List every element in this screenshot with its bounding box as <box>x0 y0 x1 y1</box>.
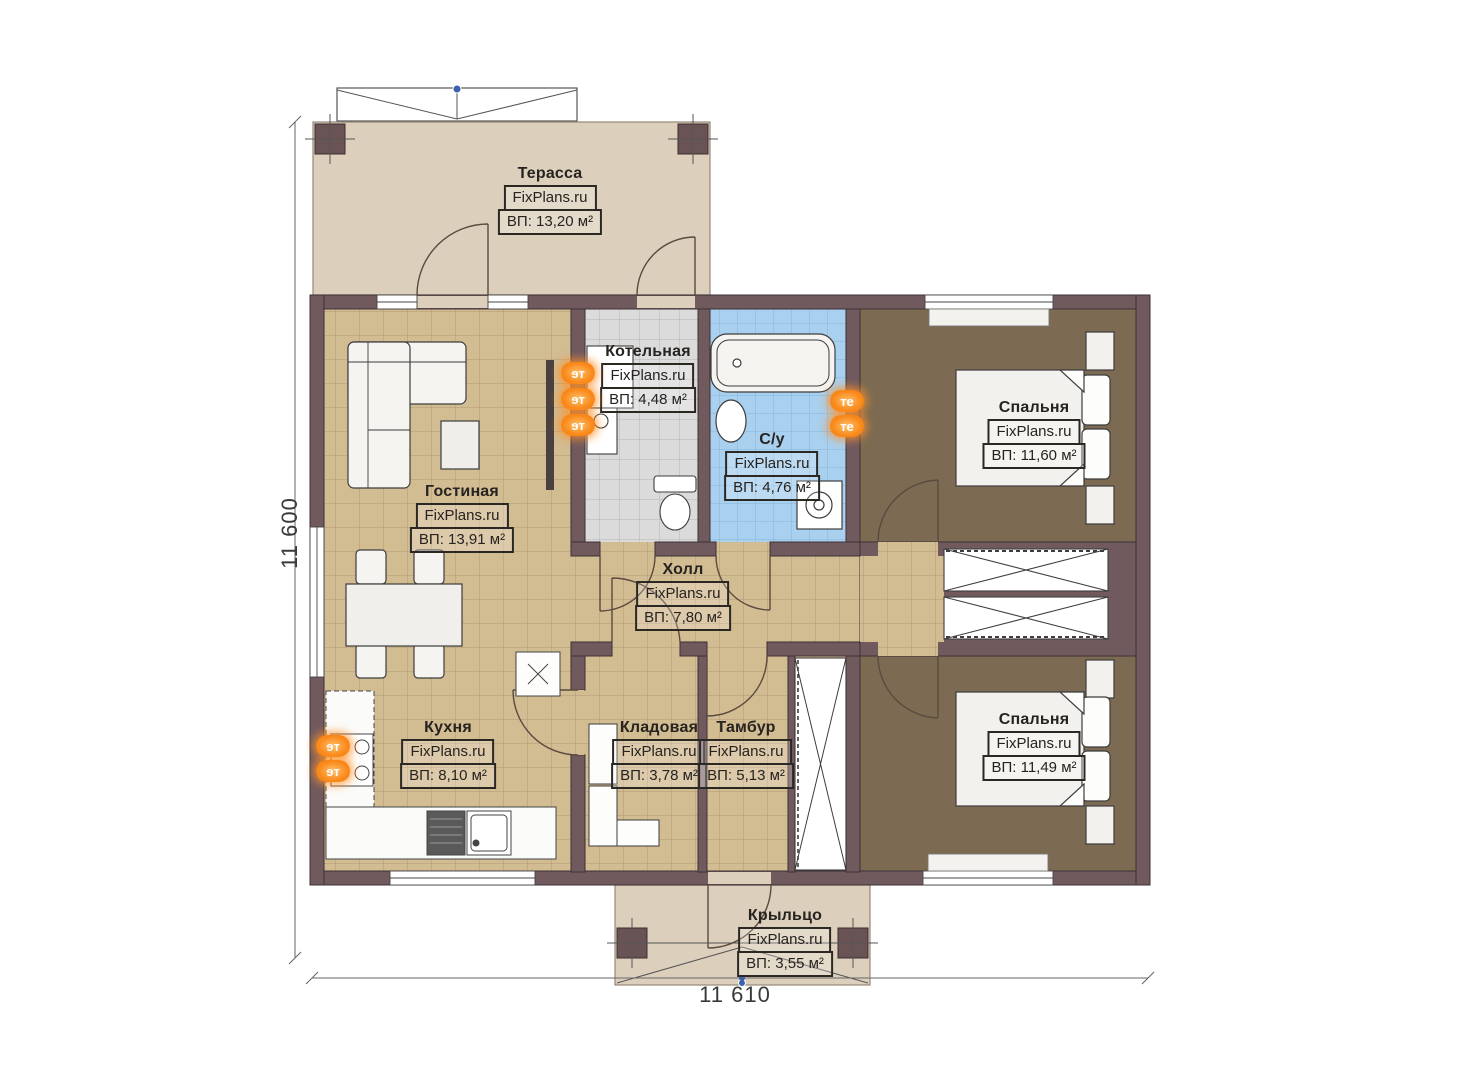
nightstand <box>1086 660 1114 698</box>
room-area: ВП: 3,78 м² <box>611 763 707 789</box>
pillow <box>1082 751 1110 801</box>
heater-icon: те <box>561 388 595 410</box>
pillow <box>1082 429 1110 479</box>
room-brand: FixPlans.ru <box>636 581 729 607</box>
room-brand: FixPlans.ru <box>612 739 705 765</box>
room-name: Холл <box>635 561 731 579</box>
room-area: ВП: 8,10 м² <box>400 763 496 789</box>
heater-label: те <box>326 739 340 754</box>
heater-label: те <box>840 419 854 434</box>
room-area: ВП: 3,55 м² <box>737 951 833 977</box>
room-brand: FixPlans.ru <box>987 731 1080 757</box>
fridge <box>516 652 560 696</box>
room-label-terrace: Терасса FixPlans.ru ВП: 13,20 м² <box>498 165 602 235</box>
nightstand <box>1086 806 1114 844</box>
room-area: ВП: 13,91 м² <box>410 527 514 553</box>
room-name: Гостиная <box>410 483 514 501</box>
room-area: ВП: 7,80 м² <box>635 605 731 631</box>
room-label-porch: Крыльцо FixPlans.ru ВП: 3,55 м² <box>737 907 833 977</box>
room-label-hall: Холл FixPlans.ru ВП: 7,80 м² <box>635 561 731 631</box>
room-brand: FixPlans.ru <box>725 451 818 477</box>
dimension-height: 11 600 <box>277 483 303 583</box>
room-label-bedroom-2: Спальня FixPlans.ru ВП: 11,49 м² <box>982 711 1085 781</box>
window-sill <box>928 854 1048 871</box>
room-brand: FixPlans.ru <box>415 503 508 529</box>
kitchen-sink <box>467 811 511 855</box>
room-area: ВП: 4,76 м² <box>724 475 820 501</box>
room-brand: FixPlans.ru <box>601 363 694 389</box>
room-label-bathroom: С/у FixPlans.ru ВП: 4,76 м² <box>724 431 820 501</box>
bathtub <box>711 334 835 392</box>
room-brand: FixPlans.ru <box>503 185 596 211</box>
floorplan-stage: Терасса FixPlans.ru ВП: 13,20 м² Котельн… <box>0 0 1473 1080</box>
heater-icon: те <box>316 735 350 757</box>
room-label-bedroom-1: Спальня FixPlans.ru ВП: 11,60 м² <box>982 399 1085 469</box>
room-brand: FixPlans.ru <box>987 419 1080 445</box>
room-name: Спальня <box>982 399 1085 417</box>
room-name: Котельная <box>600 343 696 361</box>
room-name: Терасса <box>498 165 602 183</box>
room-area: ВП: 11,60 м² <box>982 443 1085 469</box>
heater-label: те <box>571 418 585 433</box>
room-brand: FixPlans.ru <box>738 927 831 953</box>
heater-icon: те <box>561 362 595 384</box>
room-label-storage: Кладовая FixPlans.ru ВП: 3,78 м² <box>611 719 707 789</box>
tall-closet <box>795 658 846 870</box>
room-area: ВП: 5,13 м² <box>698 763 794 789</box>
heater-label: те <box>326 764 340 779</box>
heater-icon: те <box>830 415 864 437</box>
room-label-kitchen: Кухня FixPlans.ru ВП: 8,10 м² <box>400 719 496 789</box>
room-label-boiler: Котельная FixPlans.ru ВП: 4,48 м² <box>600 343 696 413</box>
heater-label: те <box>840 394 854 409</box>
room-name: Крыльцо <box>737 907 833 925</box>
room-area: ВП: 13,20 м² <box>498 209 602 235</box>
room-name: Спальня <box>982 711 1085 729</box>
heater-label: те <box>571 392 585 407</box>
room-label-vestibule: Тамбур FixPlans.ru ВП: 5,13 м² <box>698 719 794 789</box>
oven <box>427 811 465 855</box>
nightstand <box>1086 486 1114 524</box>
heater-icon: те <box>830 390 864 412</box>
room-brand: FixPlans.ru <box>699 739 792 765</box>
room-name: Кладовая <box>611 719 707 737</box>
coffee-table <box>441 421 479 469</box>
dimension-width: 11 610 <box>655 982 815 1008</box>
room-area: ВП: 4,48 м² <box>600 387 696 413</box>
heater-label: те <box>571 366 585 381</box>
room-brand: FixPlans.ru <box>401 739 494 765</box>
pillow <box>1082 697 1110 747</box>
room-name: Кухня <box>400 719 496 737</box>
heater-icon: те <box>316 760 350 782</box>
room-name: С/у <box>724 431 820 449</box>
room-area: ВП: 11,49 м² <box>982 755 1085 781</box>
room-label-living: Гостиная FixPlans.ru ВП: 13,91 м² <box>410 483 514 553</box>
nightstand <box>1086 332 1114 370</box>
pillow <box>1082 375 1110 425</box>
room-name: Тамбур <box>698 719 794 737</box>
heater-icon: те <box>561 414 595 436</box>
tv-panel <box>546 360 554 490</box>
window-sill <box>929 309 1049 326</box>
